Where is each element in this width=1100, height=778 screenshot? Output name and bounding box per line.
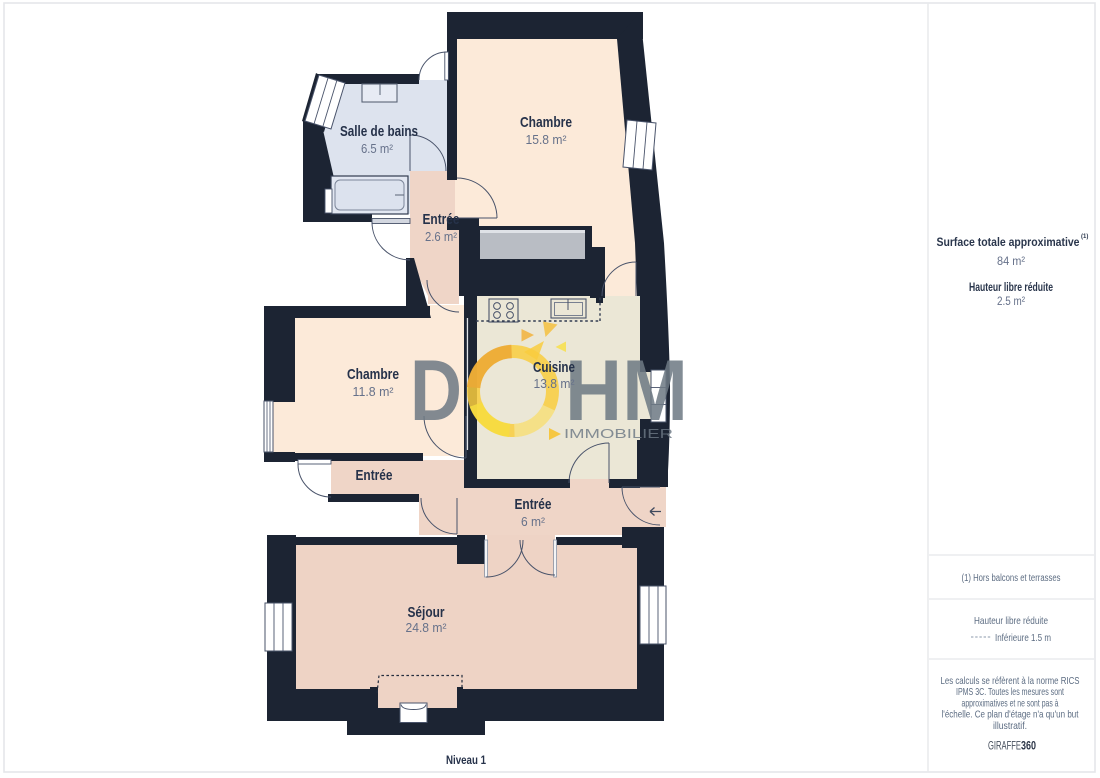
svg-text:Séjour: Séjour [408, 604, 445, 621]
svg-text:13.8 m²: 13.8 m² [534, 376, 576, 391]
svg-text:(1): (1) [1081, 234, 1088, 240]
svg-text:HM: HM [565, 343, 688, 439]
svg-text:IPMS 3C. Toutes les mesures so: IPMS 3C. Toutes les mesures sont [956, 687, 1064, 698]
svg-text:(1) Hors balcons et terrasses: (1) Hors balcons et terrasses [962, 573, 1061, 584]
svg-text:Entrée: Entrée [515, 496, 552, 513]
svg-text:11.8 m²: 11.8 m² [353, 384, 395, 399]
svg-text:Hauteur libre réduite: Hauteur libre réduite [974, 615, 1048, 627]
svg-text:D: D [410, 343, 462, 439]
svg-text:360: 360 [1021, 741, 1036, 753]
svg-text:Entrée: Entrée [356, 467, 393, 484]
svg-text:Inférieure 1.5 m: Inférieure 1.5 m [995, 632, 1051, 644]
svg-text:Cuisine: Cuisine [533, 359, 575, 376]
svg-text:6 m²: 6 m² [521, 514, 546, 529]
svg-text:Niveau 1: Niveau 1 [446, 755, 487, 767]
svg-text:GIRAFFE: GIRAFFE [988, 741, 1021, 753]
svg-text:Hauteur libre réduite: Hauteur libre réduite [969, 282, 1053, 294]
svg-text:24.8 m²: 24.8 m² [406, 620, 448, 635]
svg-text:Les calculs se réfèrent à la n: Les calculs se réfèrent à la norme RICS [941, 676, 1080, 687]
svg-text:Surface totale approximative: Surface totale approximative [937, 235, 1080, 249]
svg-text:illustratif.: illustratif. [993, 721, 1027, 732]
svg-text:15.8 m²: 15.8 m² [526, 132, 568, 147]
svg-text:l'échelle. Ce plan d'étage n'a: l'échelle. Ce plan d'étage n'a qu'un but [942, 710, 1079, 721]
svg-text:84 m²: 84 m² [997, 254, 1025, 268]
svg-text:2.5 m²: 2.5 m² [997, 294, 1025, 308]
svg-text:Entrée: Entrée [423, 211, 460, 228]
svg-text:IMMOBILIER: IMMOBILIER [564, 426, 673, 441]
svg-text:Chambre: Chambre [347, 366, 399, 383]
svg-text:Chambre: Chambre [520, 114, 572, 131]
svg-text:6.5 m²: 6.5 m² [361, 141, 394, 156]
svg-text:Salle de bains: Salle de bains [340, 123, 418, 140]
svg-text:2.6 m²: 2.6 m² [425, 229, 458, 244]
svg-text:approximatives et ne sont pas: approximatives et ne sont pas à [962, 699, 1059, 710]
